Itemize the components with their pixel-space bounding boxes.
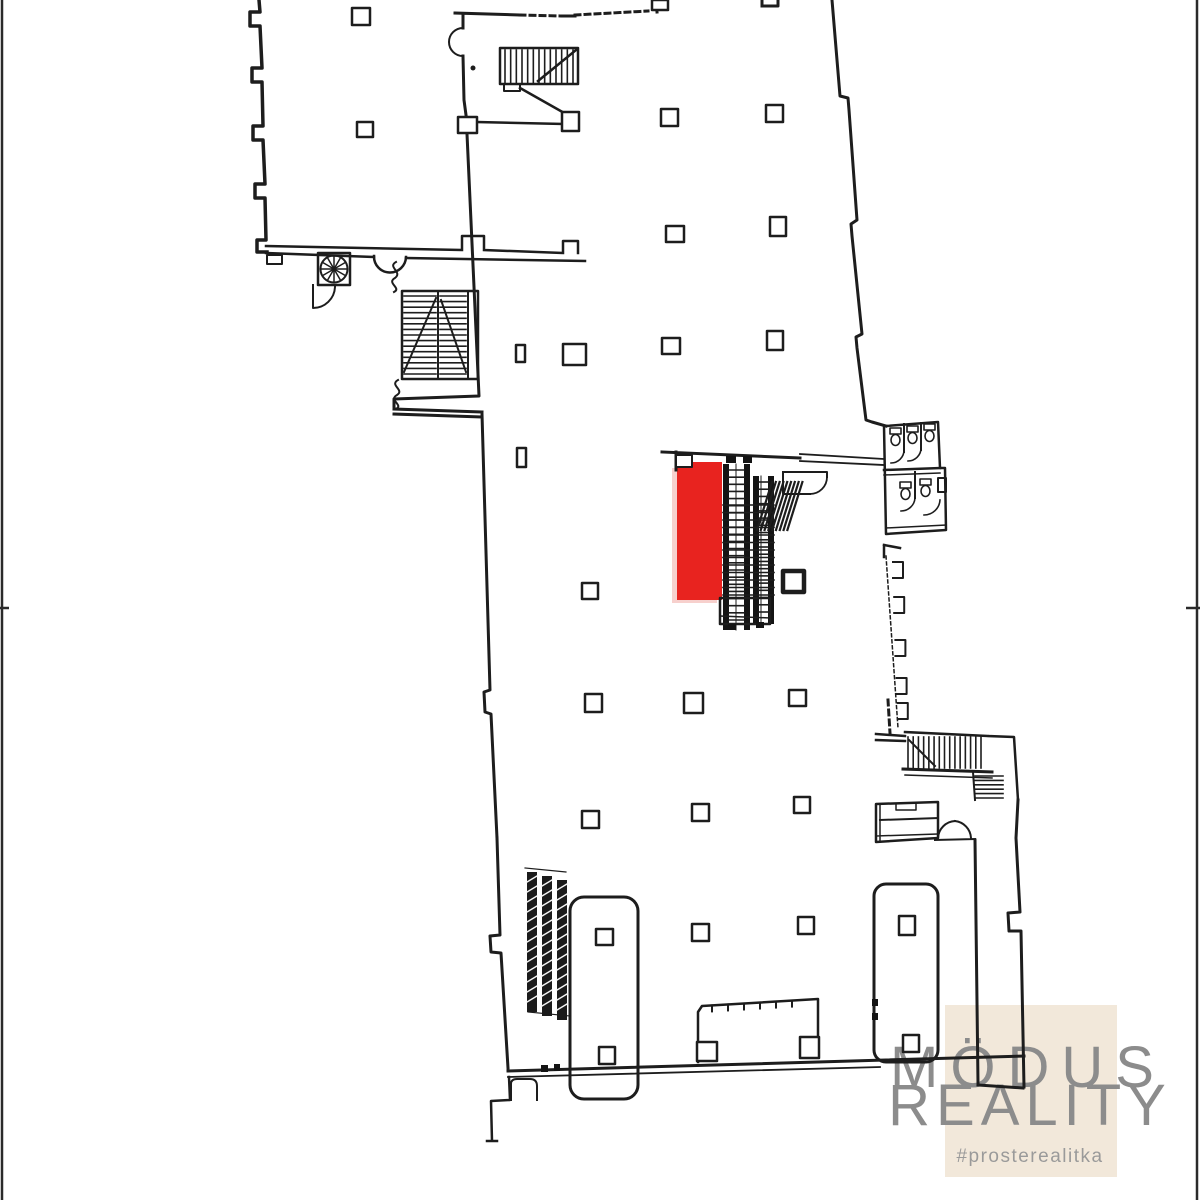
wc-block — [884, 422, 946, 534]
tall-area-left-wall — [394, 134, 497, 838]
top-centre-walls — [455, 0, 778, 115]
wall-dot — [471, 66, 476, 71]
right-outer-wall — [832, 0, 886, 426]
door-halfcircle — [374, 256, 406, 273]
hall-bottom-wall — [266, 236, 585, 261]
small-rounded-corner — [511, 1079, 537, 1100]
floor-plan-page: MÖDUS REALITY #prosterealitka — [0, 0, 1200, 1200]
door-arc-left — [449, 28, 463, 56]
watermark-brand-bottom: REALITY — [888, 1073, 1172, 1138]
bottom-left-wall — [490, 838, 508, 1068]
hall-left-wall — [250, 0, 267, 252]
highlighted-unit — [672, 462, 722, 603]
bottom-tail — [487, 1077, 510, 1141]
bottom-left-escalators — [525, 868, 570, 1020]
highlight-rect — [677, 462, 722, 600]
framed-column — [783, 571, 804, 592]
kiosk — [876, 802, 975, 842]
spiral-staircase — [313, 253, 350, 308]
watermark-hashtag: #prosterealitka — [956, 1146, 1103, 1167]
wall-pilaster — [267, 255, 282, 264]
floor-plan-svg: MÖDUS REALITY #prosterealitka — [0, 0, 1200, 1200]
floor-plan-linework — [250, 0, 1024, 1141]
watermark: MÖDUS REALITY #prosterealitka — [888, 1005, 1172, 1177]
